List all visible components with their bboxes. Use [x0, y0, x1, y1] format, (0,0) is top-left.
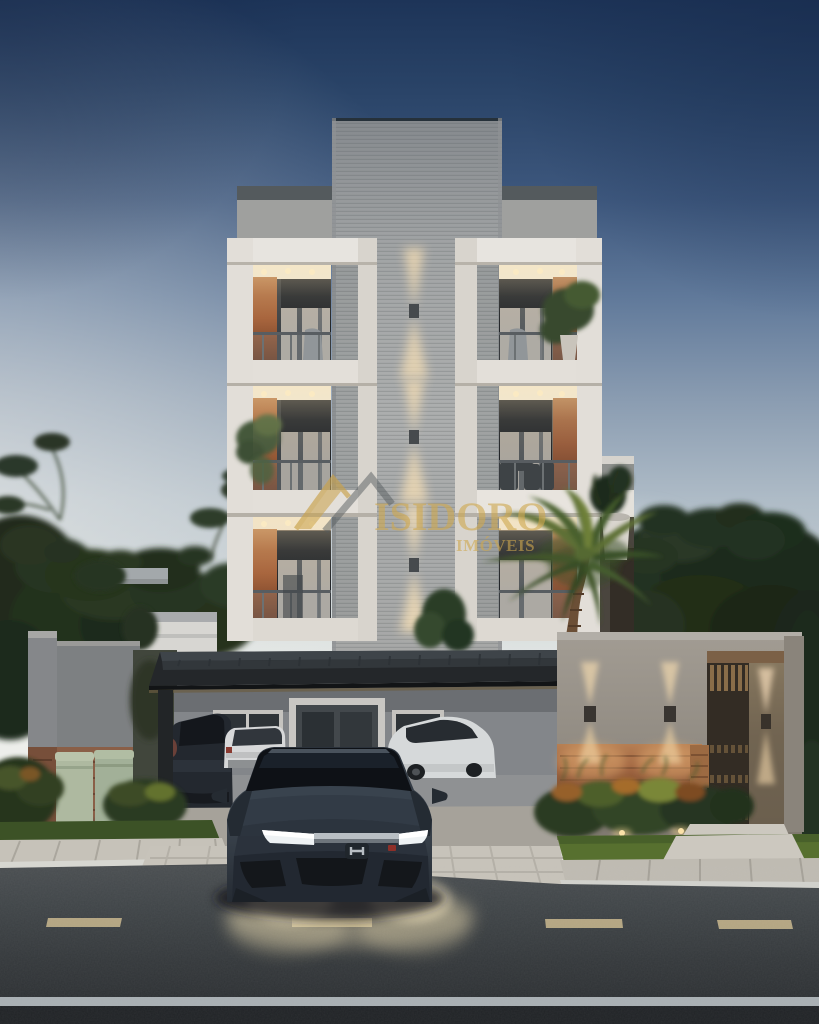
- svg-text:ISIDORO: ISIDORO: [374, 494, 547, 539]
- svg-text:IMÓVEIS: IMÓVEIS: [456, 536, 535, 555]
